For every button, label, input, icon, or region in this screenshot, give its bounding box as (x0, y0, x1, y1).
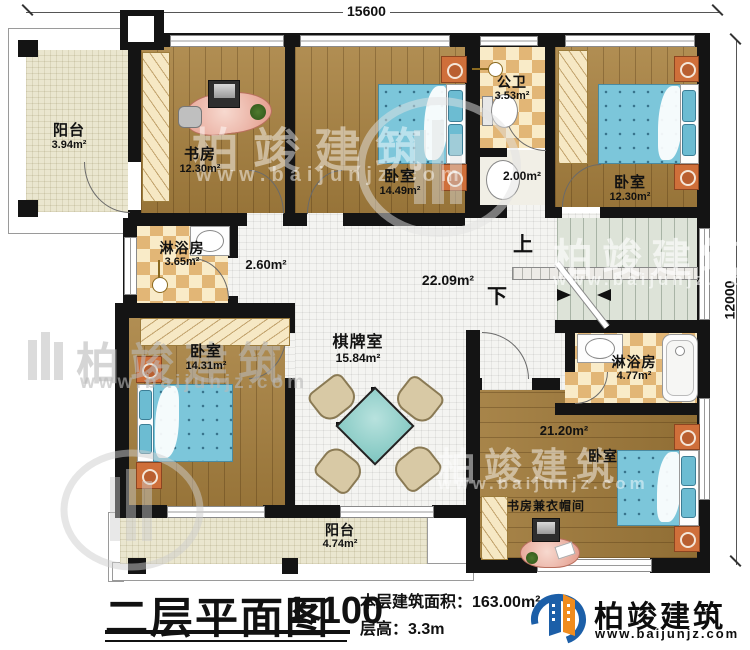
wall (285, 378, 295, 518)
shower-fixture (152, 277, 168, 293)
wall (650, 558, 710, 573)
nightstand (674, 526, 700, 552)
dimension-tick (21, 4, 33, 16)
wall (263, 505, 340, 518)
room-label-bedroom-left: 卧室 14.31m² (166, 343, 246, 373)
wardrobe (140, 318, 290, 346)
window (480, 36, 538, 46)
room-label-shower-left: 淋浴房 3.65m² (144, 240, 220, 269)
room-label-hall-small: 2.60m² (235, 258, 297, 273)
dimension-tick (711, 4, 723, 16)
room-label-study: 书房 12.30m² (158, 146, 242, 176)
wall (285, 47, 295, 213)
wall (565, 333, 575, 372)
computer-monitor (532, 518, 560, 542)
stairs-down-label: 下 (484, 286, 510, 309)
wall (555, 403, 697, 415)
balcony-post (282, 558, 298, 574)
plant (526, 552, 538, 564)
pillow (682, 124, 696, 156)
wall (466, 378, 482, 390)
wall (532, 378, 560, 390)
watermark-logo-bars (20, 328, 72, 386)
stairs-up-label: 上 (510, 234, 536, 257)
bathtub-drain (675, 346, 685, 356)
floor-plan-canvas: 15600 12000 (0, 0, 750, 650)
wall (545, 207, 562, 218)
window (565, 35, 695, 47)
watermark-logo-swoosh (55, 445, 210, 575)
window (300, 35, 450, 47)
wall (466, 330, 480, 568)
watermark-logo-swoosh (352, 92, 527, 242)
balcony-post (18, 200, 38, 217)
room-label-bedroom-top: 卧室 14.49m² (358, 168, 442, 198)
corner-flue-inner (128, 16, 154, 42)
title-underline-thick (105, 630, 350, 634)
pillow (139, 390, 152, 420)
room-label-balcony-bottom: 阳台 4.74m² (298, 522, 382, 551)
bottom-balcony-window (427, 512, 468, 564)
wardrobe (558, 50, 588, 164)
room-label-bedroom-right: 卧室 12.30m² (592, 174, 668, 204)
window (124, 237, 137, 295)
pillow (682, 90, 696, 122)
sliding-door (340, 506, 434, 518)
title-underline-thin (105, 640, 347, 642)
room-label-game-room: 棋牌室 15.84m² (316, 334, 400, 366)
room-label-public-bath: 公卫 3.53m² (482, 74, 542, 103)
nightstand (674, 424, 700, 450)
floor-height-text: 层高：3.3m (360, 615, 444, 639)
wall (600, 207, 697, 218)
window (699, 398, 710, 500)
window (170, 35, 284, 47)
company-logo-url: www.baijunjz.com (595, 626, 739, 641)
window (699, 228, 710, 320)
computer-monitor (208, 80, 240, 108)
floor-area-text: 本层建筑面积：163.00m² (360, 588, 541, 612)
wall (432, 505, 466, 518)
nightstand (136, 356, 162, 383)
pillow (681, 456, 696, 486)
desk-chair (178, 106, 202, 128)
wall (115, 303, 295, 318)
nightstand (674, 56, 699, 82)
room-label-balcony-top: 阳台 3.94m² (38, 122, 100, 152)
right-dimension-label: 12000 (721, 277, 737, 324)
company-logo-icon (527, 586, 589, 646)
room-label-shower-right: 淋浴房 4.77m² (596, 354, 672, 383)
room-label-wash: 2.00m² (494, 170, 550, 184)
pillow (681, 488, 696, 518)
plant (250, 104, 266, 120)
top-dimension-label: 15600 (343, 3, 390, 19)
nightstand (674, 164, 699, 190)
room-label-hall: 22.09m² (406, 272, 490, 288)
room-label-bedroom-bottom-area: 21.20m² (528, 424, 600, 439)
nightstand (441, 56, 467, 83)
wall (283, 213, 307, 226)
room-label-bedroom-bottom-name: 卧室 (576, 448, 630, 464)
stair-break-line (545, 255, 625, 335)
wardrobe (142, 52, 170, 202)
room-label-cloakroom: 书房兼衣帽间 (498, 500, 594, 514)
balcony-post (18, 40, 38, 57)
